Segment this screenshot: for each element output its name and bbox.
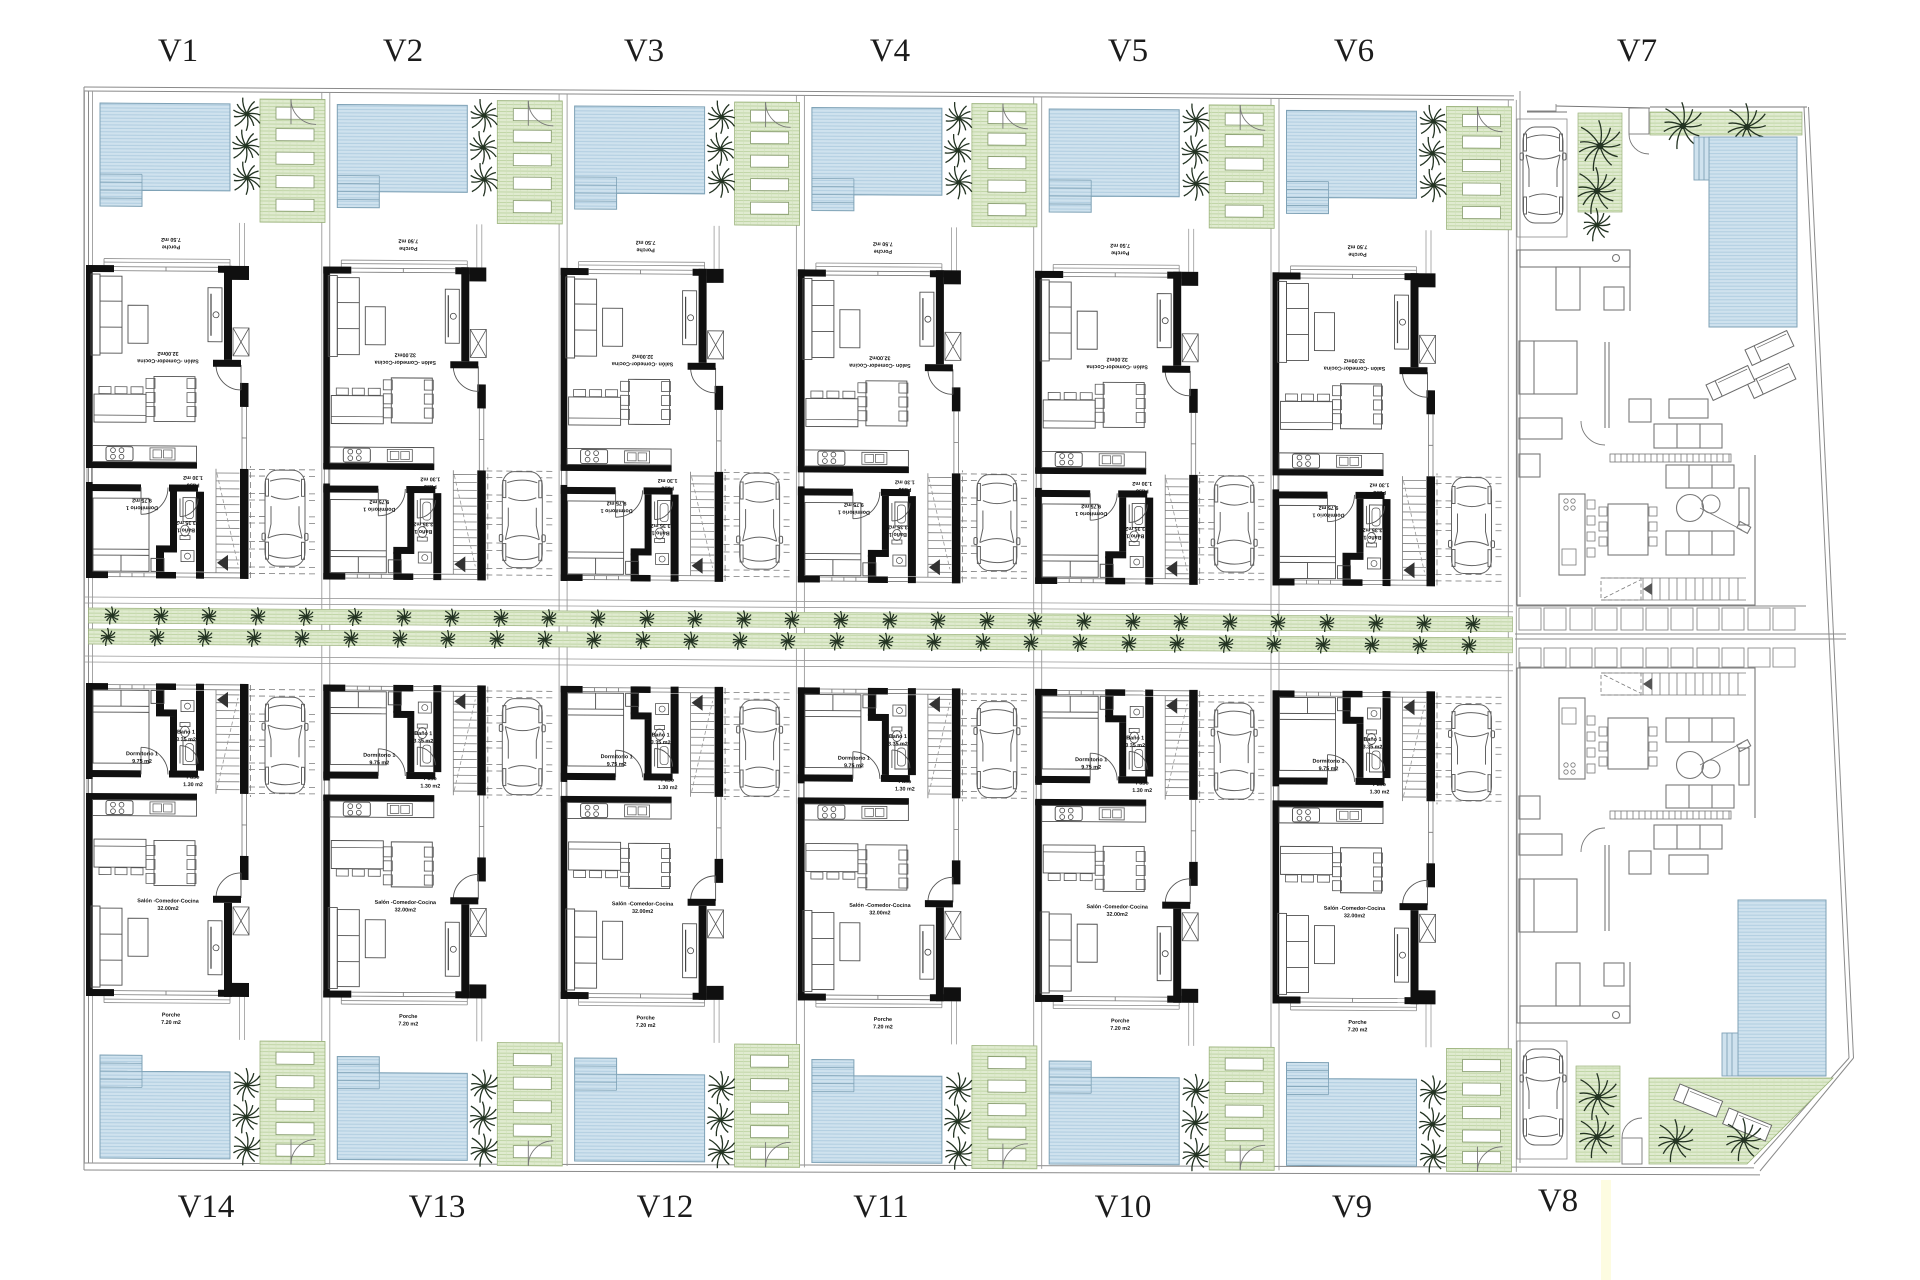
svg-text:V5: V5 bbox=[1108, 33, 1148, 69]
svg-text:V12: V12 bbox=[637, 1189, 694, 1225]
svg-text:V7: V7 bbox=[1617, 33, 1657, 69]
svg-text:V3: V3 bbox=[624, 33, 664, 69]
svg-text:V11: V11 bbox=[853, 1189, 909, 1225]
svg-text:V1: V1 bbox=[158, 33, 198, 69]
svg-text:V14: V14 bbox=[178, 1189, 235, 1225]
svg-text:V6: V6 bbox=[1334, 33, 1374, 69]
svg-text:V10: V10 bbox=[1095, 1189, 1152, 1225]
svg-text:V2: V2 bbox=[383, 33, 423, 69]
svg-text:V4: V4 bbox=[870, 33, 910, 69]
svg-text:V13: V13 bbox=[409, 1189, 466, 1225]
svg-text:V8: V8 bbox=[1538, 1183, 1578, 1219]
svg-text:V9: V9 bbox=[1332, 1189, 1372, 1225]
